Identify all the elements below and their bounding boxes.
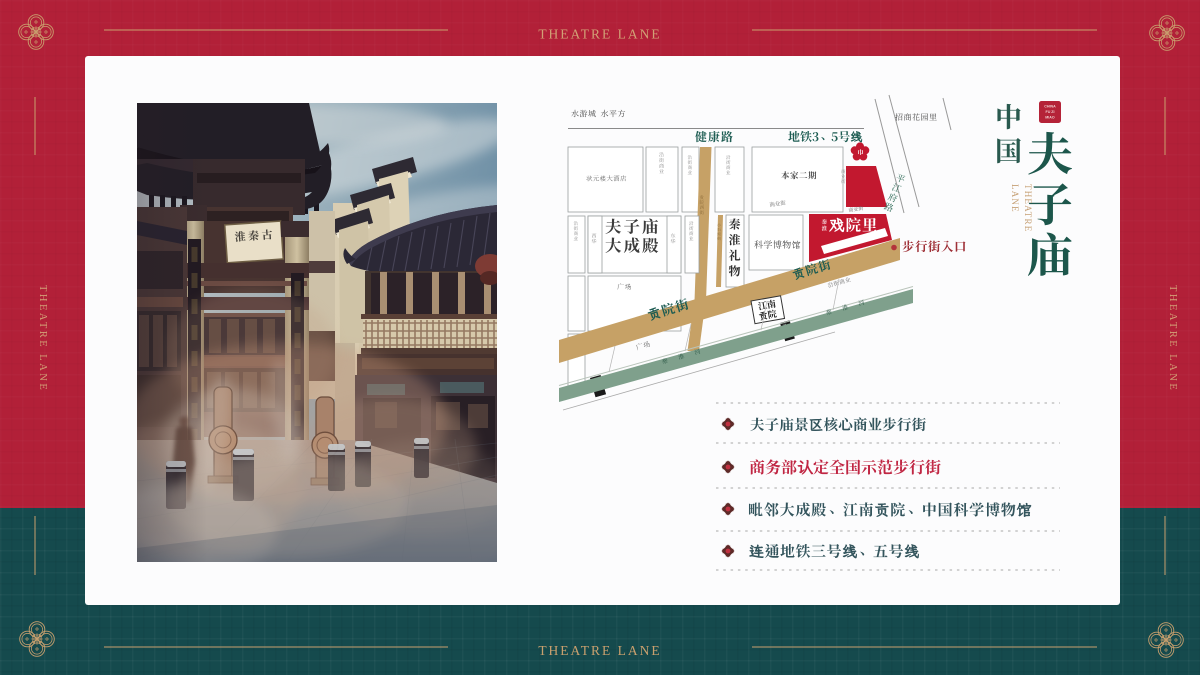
svg-text:THEATRE LANE: THEATRE LANE — [1167, 285, 1178, 392]
svg-text:THEATRE LANE: THEATRE LANE — [37, 285, 48, 392]
svg-text:LANE: LANE — [1010, 184, 1020, 213]
svg-text:THEATRE: THEATRE — [1023, 184, 1033, 232]
svg-text:MIAO: MIAO — [1045, 116, 1055, 120]
svg-text:THEATRE LANE: THEATRE LANE — [538, 27, 661, 42]
svg-text:FU ZI: FU ZI — [1046, 110, 1055, 114]
svg-text:THEATRE LANE: THEATRE LANE — [538, 643, 661, 658]
svg-text:CHINA: CHINA — [1044, 105, 1056, 109]
